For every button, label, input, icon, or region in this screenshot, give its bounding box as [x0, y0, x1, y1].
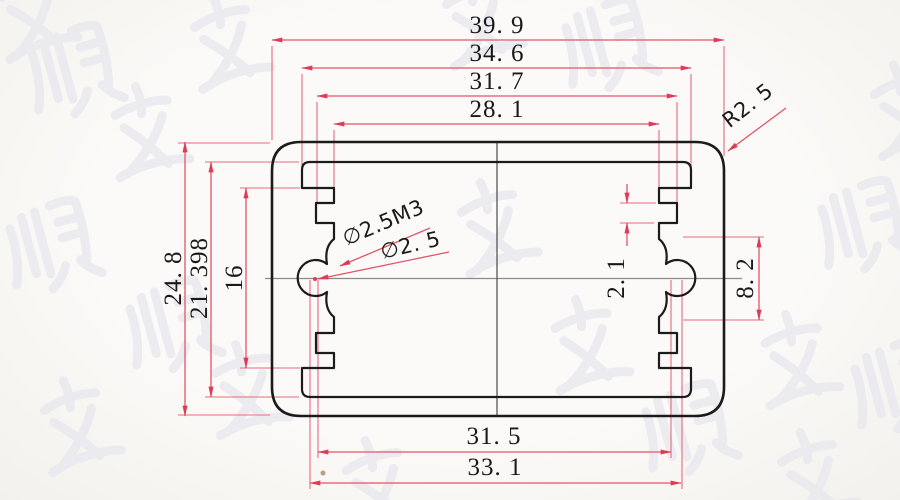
dim-label-33-1: 33. 1 — [468, 454, 523, 481]
dim-label-2-1: 2. 1 — [603, 257, 630, 299]
dim-label-31-5: 31. 5 — [467, 423, 522, 450]
watermark-layer — [0, 0, 900, 500]
profile-drawing-svg: 39. 9 34. 6 31. 7 28. 1 24. 8 21. 398 16… — [0, 0, 900, 500]
dim-label-24-8: 24. 8 — [160, 251, 187, 306]
dim-label-39-9: 39. 9 — [470, 12, 525, 39]
dim-label-34-6: 34. 6 — [470, 40, 525, 67]
hole-center-mark — [313, 277, 317, 281]
callout-label-r2-5: R2. 5 — [718, 78, 778, 132]
dim-label-16: 16 — [221, 265, 248, 292]
dim-label-8-2: 8. 2 — [732, 257, 759, 299]
dim-label-28-1: 28. 1 — [470, 96, 525, 123]
technical-drawing-canvas: 39. 9 34. 6 31. 7 28. 1 24. 8 21. 398 16… — [0, 0, 900, 500]
paper-speck — [321, 471, 326, 476]
dim-label-31-7: 31. 7 — [470, 68, 525, 95]
dim-label-21-398: 21. 398 — [186, 237, 213, 319]
